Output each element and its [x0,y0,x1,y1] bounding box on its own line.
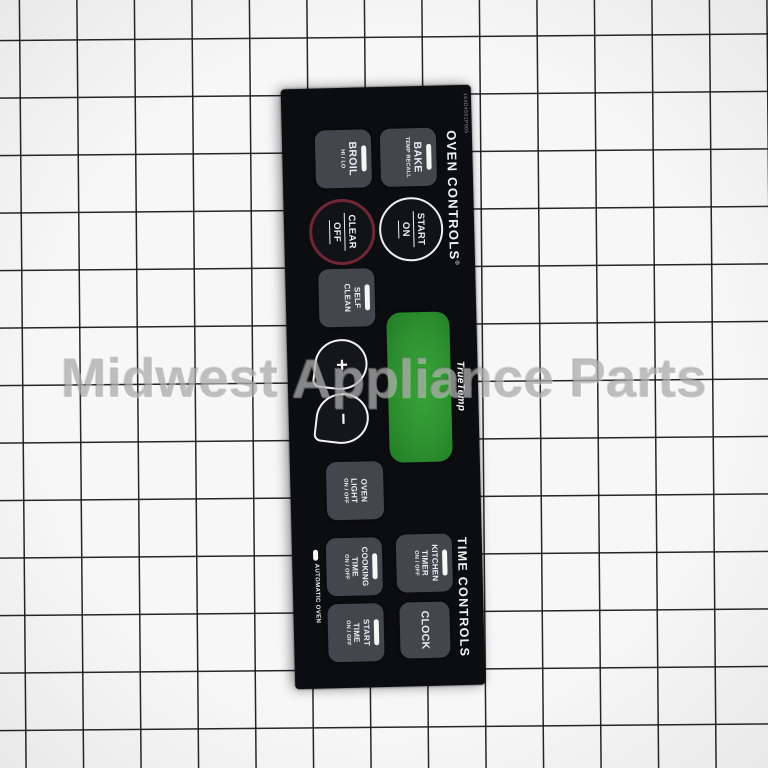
indicator-bar [426,144,432,170]
on-label: ON [398,220,411,239]
automatic-oven-indicator: AUTOMATIC OVEN [313,550,321,624]
time-label: TIME [352,623,362,643]
broil-button[interactable]: BROIL HI / LO [315,129,372,188]
plus-icon: + [329,358,352,370]
indicator-bar [442,549,448,575]
registered-mark: ® [453,260,459,266]
broil-label: BROIL [346,141,359,175]
timer-label: TIMER [420,550,430,576]
indicator-bar [374,619,380,645]
oven-label: OVEN [359,479,369,503]
start-on-button[interactable]: START ON [378,196,444,262]
increase-button[interactable]: + [312,336,371,393]
start-time-button[interactable]: START TIME ON / OFF [327,603,384,662]
oven-controls-heading-text: OVEN CONTROLS [444,130,462,261]
start-label: START [413,211,427,248]
clock-label: CLOCK [418,610,431,649]
clean-label: CLEAN [342,283,352,312]
indicator-bar [364,284,370,310]
cooking-label: COOKING [359,547,369,587]
kitchen-label: KITCHEN [429,544,439,581]
kitchen-timer-button[interactable]: KITCHEN TIMER ON / OFF [396,533,453,592]
clear-label: CLEAR [344,212,358,251]
indicator-bar [361,145,367,171]
on-off-label: ON / OFF [412,550,420,576]
on-off-label: ON / OFF [344,620,352,646]
hi-lo-label: HI / LO [338,149,345,168]
self-clean-button[interactable]: SELF CLEAN [318,268,375,327]
product-photo: 164D4501P005 OVEN CONTROLS® BAKE TEMP RE… [0,0,768,768]
part-number: 164D4501P005 [462,93,469,134]
on-off-label: ON / OFF [341,478,349,504]
light-label: LIGHT [349,478,359,503]
clear-off-button[interactable]: CLEAR OFF [308,198,376,266]
indicator-bar [372,553,378,579]
cooking-time-button[interactable]: COOKING TIME ON / OFF [326,537,383,596]
self-label: SELF [352,287,362,308]
time-controls-heading: TIME CONTROLS [454,529,471,665]
oven-controls-heading: OVEN CONTROLS® [444,123,463,273]
bake-button[interactable]: BAKE TEMP RECALL [380,128,437,187]
truetemp-logo: TrueTemp [453,311,468,461]
automatic-oven-label: AUTOMATIC OVEN [313,564,320,624]
bake-label: BAKE [411,141,424,172]
time-label: TIME [350,557,360,577]
display-window [386,311,453,462]
oven-light-button[interactable]: OVEN LIGHT ON / OFF [326,461,384,520]
off-label: OFF [329,220,343,244]
on-off-label: ON / OFF [342,554,350,580]
automatic-oven-light [313,550,318,561]
decrease-button[interactable]: − [313,390,372,447]
temp-recall-label: TEMP RECALL [403,137,411,178]
minus-icon: − [331,412,354,424]
oven-control-membrane-panel: 164D4501P005 OVEN CONTROLS® BAKE TEMP RE… [281,85,486,689]
start-label: START [361,619,371,646]
clock-button[interactable]: CLOCK [399,601,450,658]
